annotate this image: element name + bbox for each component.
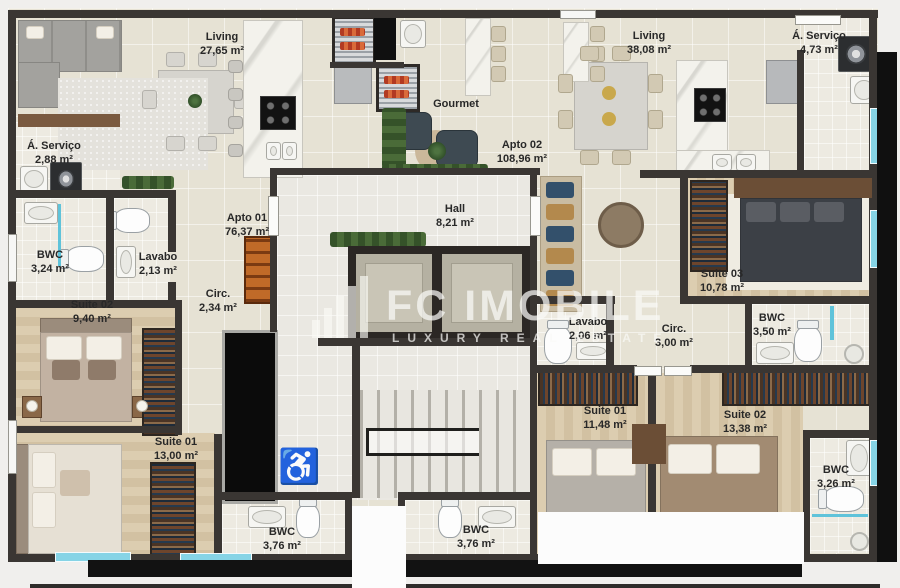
wall [345,500,352,562]
kitchen-sink [266,142,281,160]
bwc350-toilet [794,326,822,362]
gourmet-chair [491,26,506,42]
room-label-a2-servico: Á. Serviço 4,73 m² [792,30,846,58]
room-name: Gourmet [433,98,479,112]
service-shaft [222,330,278,504]
room-name: Suite 03 [700,268,744,282]
bar-chair [590,66,605,82]
room-name: BWC [263,526,301,540]
wall [106,198,114,303]
wardrobe-suite02-a1 [142,328,178,436]
room-area: 3,24 m² [31,263,69,277]
room-area: 13,00 m² [154,450,198,464]
cooktop-a1 [260,96,296,130]
stair-rail [366,428,479,456]
room-name: Á. Serviço [27,140,81,154]
bbq-grill-2 [376,64,420,112]
round-table-a2 [598,202,644,248]
throw-pillow [52,360,80,380]
bed-pillow [596,448,636,476]
gourmet-bar [465,18,491,96]
wall [803,430,810,560]
bwc1-toilet [66,246,104,272]
door-servico-a2 [795,15,841,25]
table-centerpiece-gold [602,86,616,100]
room-area: 10,78 m² [700,282,744,296]
room-area: 4,73 m² [792,44,846,58]
apartment-name: Apto 01 [225,212,269,226]
room-label-a2-suite02: Suite 02 13,38 m² [723,409,767,437]
room-area: 8,21 m² [436,217,474,231]
grill-meat [340,28,365,36]
room-label-gourmet: Gourmet [433,98,479,112]
bed-pillow-dark [814,202,844,222]
bed-pillow [716,444,760,474]
room-label-a1-suite02: Suite 02 9,40 m² [71,299,113,327]
bed-pillow [32,452,56,488]
door-corridor [664,366,692,376]
wall-hall-left [270,168,277,332]
hall-planter [330,232,426,247]
room-label-a2-suite03: Suite 03 10,78 m² [700,268,744,296]
lavabo1-toilet [114,208,150,233]
facade-band-right [877,52,897,562]
dining-chair [580,46,599,61]
wall [640,170,878,178]
water-pipe [812,514,868,517]
room-name: Lavabo [139,251,178,265]
room-name: Living [200,31,244,45]
kitchen-sink [282,142,297,160]
island-stool [228,116,243,129]
gourmet-plant [428,142,446,160]
floor-plan: ♿ [0,0,900,588]
laundry-sink-a1 [20,166,48,192]
headboard-wall-suite03 [734,178,872,198]
room-area: 3,50 m² [753,326,791,340]
bbq-grill-1 [332,16,376,66]
closet-suite02-a2 [722,371,876,406]
pillow-navy [546,226,574,242]
throw-pillow [88,360,116,380]
room-name: Suite 02 [71,299,113,313]
room-label-a2-suite01: Suite 01 11,48 m² [583,405,626,433]
room-label-a2-suite-bwc: BWC 3,76 m² [457,524,495,552]
bed-pillow [86,336,122,360]
wall [398,492,537,500]
room-area: 9,40 m² [71,313,113,327]
wall [803,430,878,438]
bwc350-cabinet [756,342,794,364]
apartment-label-apto1: Apto 01 76,37 m² [225,212,269,240]
room-name: BWC [31,249,69,263]
room-label-a1-circ: Circ. 2,34 m² [199,288,237,316]
room-name: Suite 01 [154,436,198,450]
room-area: 13,38 m² [723,423,767,437]
room-area: 2,34 m² [199,302,237,316]
room-name: BWC [817,464,855,478]
room-area: 11,48 m² [583,419,626,433]
room-name: BWC [457,524,495,538]
wall [352,346,360,498]
water-pipe [830,306,834,340]
room-area: 27,65 m² [200,45,244,59]
grill-meat [384,76,409,84]
sofa-chaise-a1 [18,62,60,108]
lavabo1-sink [116,246,136,278]
room-label-a1-suite-bwc: BWC 3,76 m² [263,526,301,554]
wall [690,365,878,373]
room-area: 38,08 m² [627,44,671,58]
wall-hall-top [270,168,540,175]
window-white [560,10,596,19]
dining-chair [612,150,631,165]
door-corridor [634,366,662,376]
closet-suite01-a2 [538,371,638,406]
wardrobe-suite01-a1 [150,462,196,560]
watermark-tagline: LUXURY REAL ESTATE [392,331,669,345]
watermark-brand: FC IMOBILE [386,282,664,331]
room-label-hall: Hall 8,21 m² [436,203,474,231]
room-area: 3,76 m² [263,540,301,554]
apartment-area: 108,96 m² [497,153,547,167]
room-area: 2,13 m² [139,265,178,279]
shower-head [850,532,869,551]
room-label-a2-living: Living 38,08 m² [627,30,671,58]
room-name: Á. Serviço [792,30,846,44]
gourmet-chair [491,46,506,62]
room-label-a1-living: Living 27,65 m² [200,31,244,59]
grill-meat [384,90,409,98]
wall [745,304,752,373]
dining-chair [166,136,185,151]
wall [175,308,182,435]
room-area: 2,88 m² [27,154,81,168]
bed-pillow [32,492,56,528]
bar-chair [590,26,605,42]
shower-head [844,344,864,364]
bed-pillow [46,336,82,360]
room-label-a2-bwc326: BWC 3,26 m² [817,464,855,492]
dining-chair [198,136,217,151]
bed-pillow [552,448,592,476]
chimney-column [374,16,396,60]
room-name: Hall [436,203,474,217]
gourmet-chair [491,66,506,82]
window-white [8,420,17,474]
pillow-gold [546,248,574,264]
white-mask-center [352,506,406,588]
wall [680,296,878,304]
lamp [136,400,148,412]
bwc376l-cabinet [248,506,286,528]
pillow-gold [546,204,574,220]
gourmet-cabinet [334,66,372,104]
wall-outer-left [8,10,16,562]
wardrobe-suite03 [690,180,728,272]
wall [797,50,804,176]
table-centerpiece-gold [602,112,616,126]
wheelchair-icon: ♿ [278,450,320,484]
room-name: Suite 02 [723,409,767,423]
apartment-label-apto2: Apto 02 108,96 m² [497,139,547,167]
dining-chair [142,90,157,109]
dining-chair [580,150,599,165]
wall [168,282,176,308]
kitchen-sink [712,154,732,171]
room-label-a2-bwc350: BWC 3,50 m² [753,312,791,340]
grill-meat [340,42,365,50]
bwc1-cabinet [24,202,58,224]
room-label-a1-bwc: BWC 3,24 m² [31,249,69,277]
island-stool [228,88,243,101]
dining-chair [558,74,573,93]
room-area: 3,76 m² [457,538,495,552]
door-apto2 [530,196,541,236]
window-white [8,234,17,282]
white-mask-right [538,512,804,564]
wall [214,492,352,500]
room-name: BWC [753,312,791,326]
wall [8,190,176,198]
room-area: 3,26 m² [817,478,855,492]
dining-chair [166,52,185,67]
wall [537,365,637,373]
wall [168,190,176,252]
apartment-name: Apto 02 [497,139,547,153]
room-label-a1-lavabo: Lavabo 2,13 m² [139,251,178,279]
table-centerpiece [188,94,202,108]
kitchen-sink [736,154,756,171]
dining-chair [648,110,663,129]
watermark-logo-icon [312,274,380,338]
service-counter-a1 [18,114,120,127]
room-label-a1-suite01: Suite 01 13,00 m² [154,436,198,464]
island-stool [228,60,243,73]
apartment-area: 76,37 m² [225,226,269,240]
sofa-pillow [96,26,114,39]
headboard-divider [632,424,666,464]
door-apto1 [268,196,279,236]
room-name: Suite 01 [583,405,626,419]
dining-chair [648,74,663,93]
gourmet-wall [330,62,404,68]
room-name: Circ. [199,288,237,302]
gourmet-hedge-vertical [382,108,406,168]
pillow-navy [546,182,574,198]
bed-pillow-dark [780,202,810,222]
planter-hedge [122,176,174,189]
wall [680,178,688,304]
lamp [26,400,38,412]
throw-pillow [60,470,90,496]
wall-outer-top [8,10,878,18]
bed-pillow [668,444,712,474]
bed-pillow-dark [746,202,776,222]
cooktop-a2 [694,88,726,122]
dining-chair [558,110,573,129]
island-stool [228,144,243,157]
sofa-pillow [26,26,44,39]
room-name: Living [627,30,671,44]
refrigerator-a2 [766,60,801,104]
wall [8,426,180,433]
room-label-a1-servico: Á. Serviço 2,88 m² [27,140,81,168]
slab-edge-line [30,584,880,588]
wall [214,492,222,562]
gourmet-sink [400,20,426,48]
